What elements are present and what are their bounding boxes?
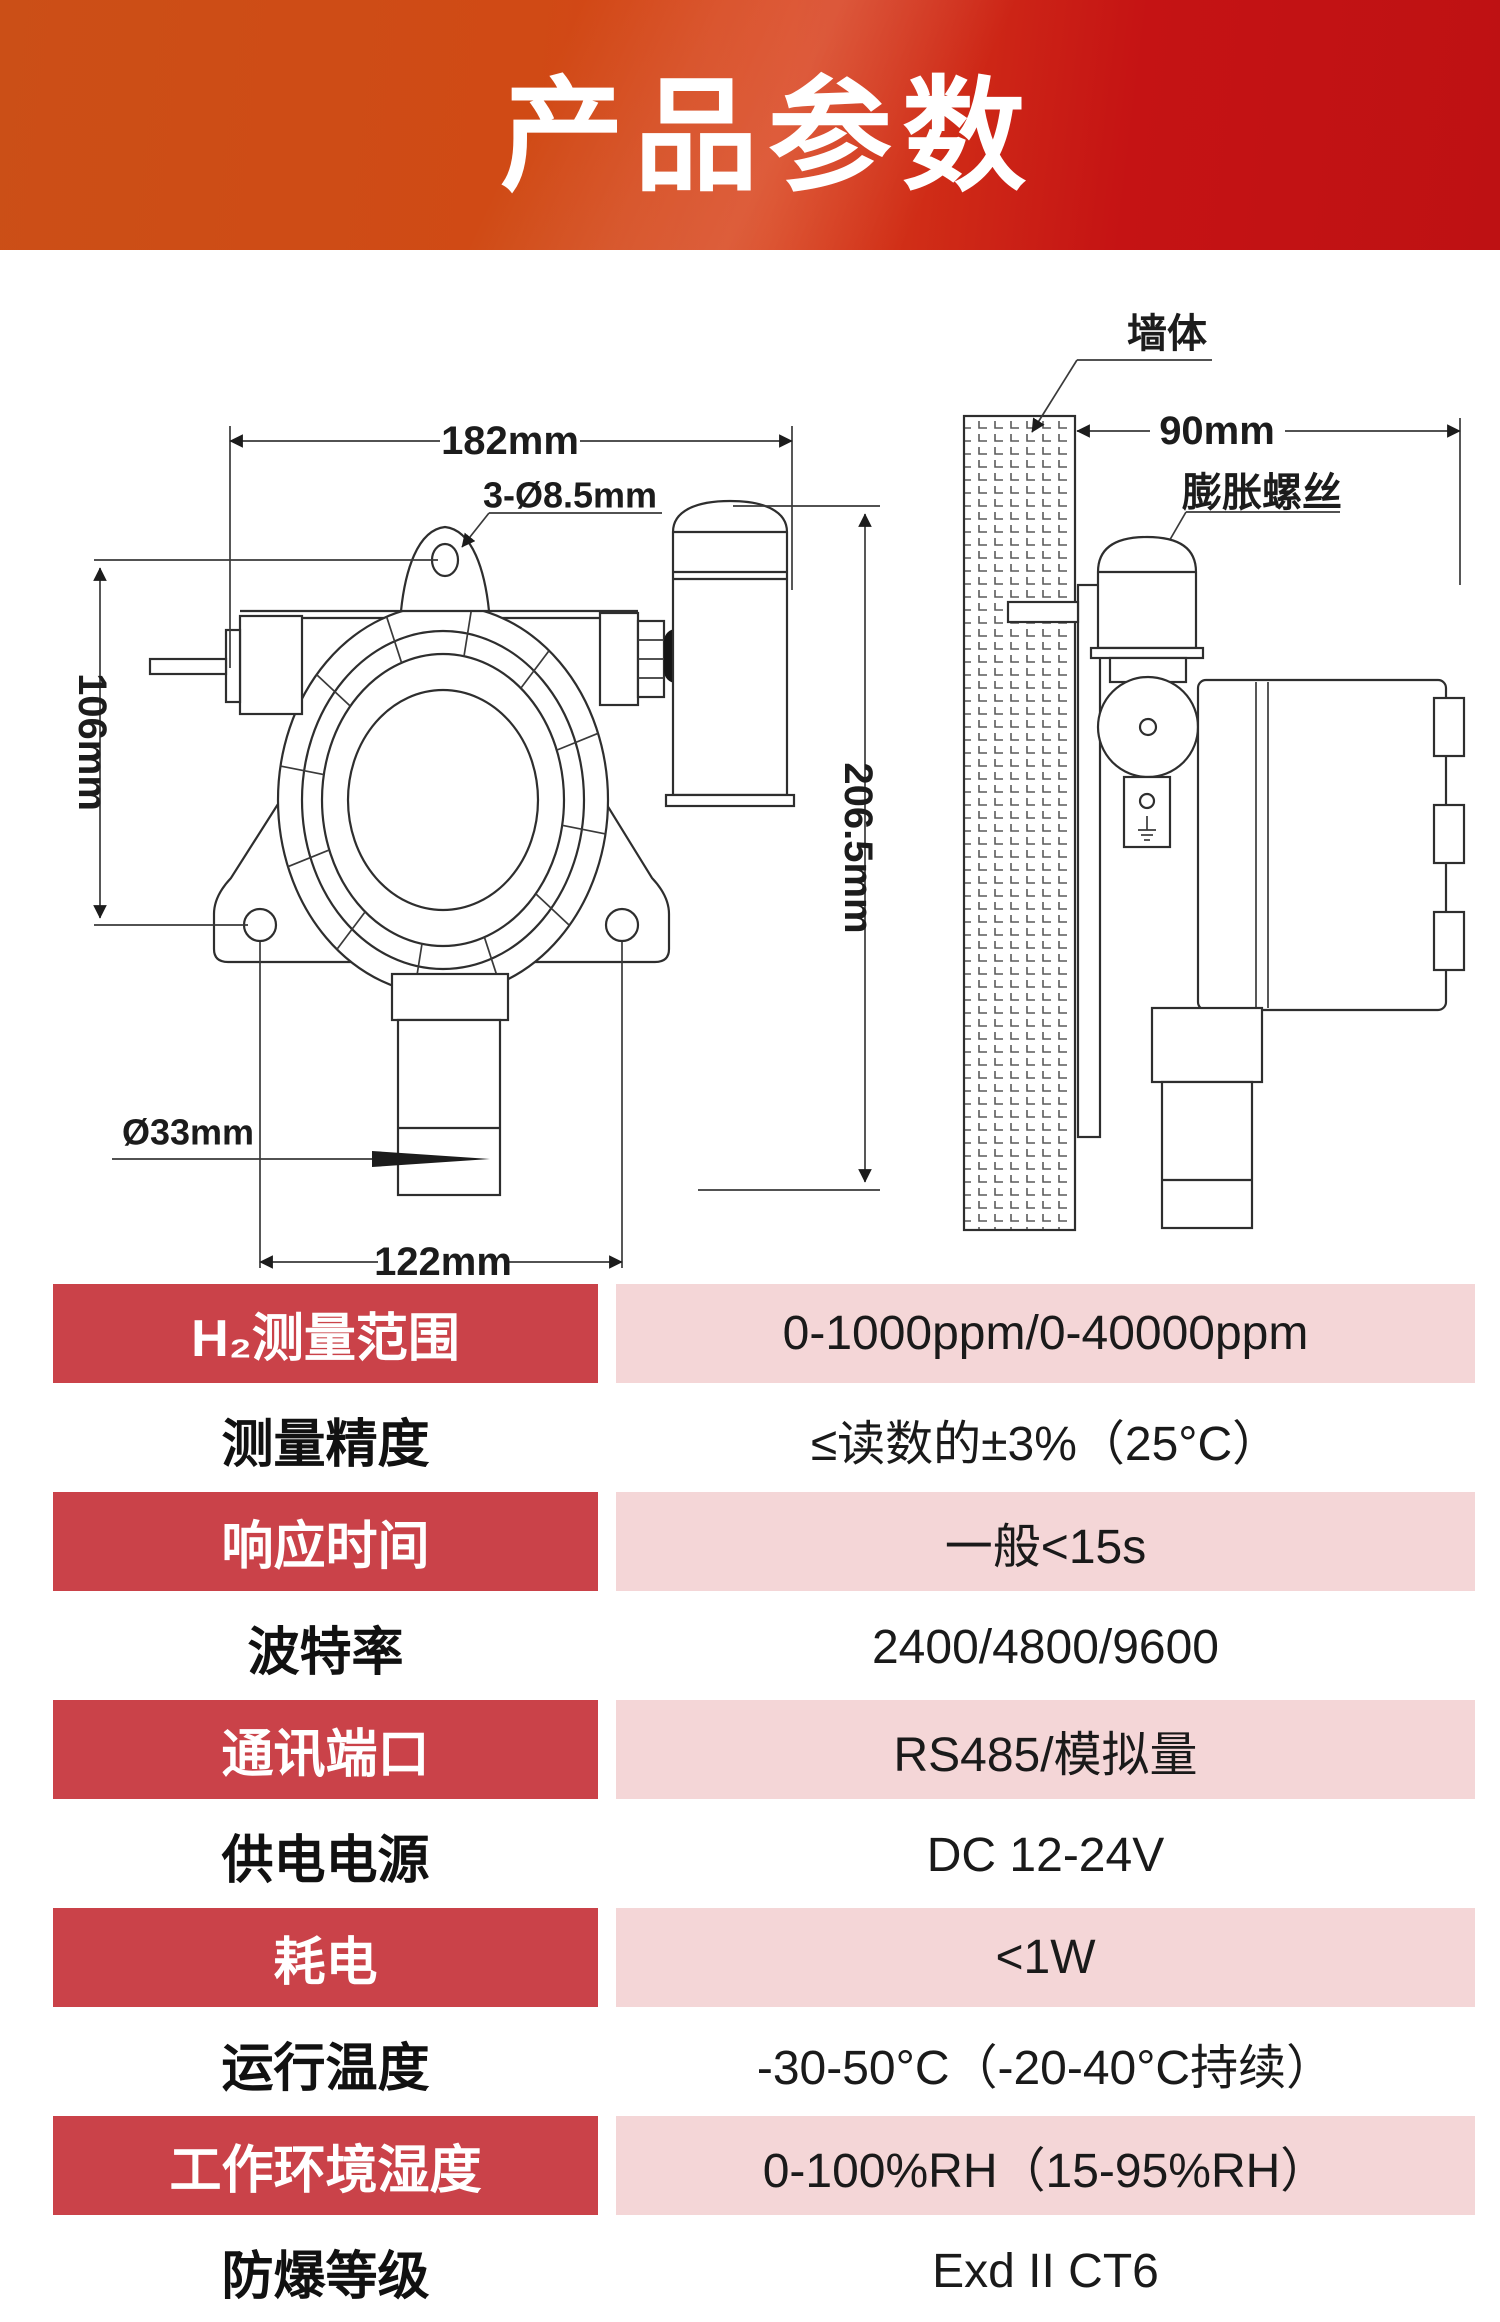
ground-tab	[1124, 777, 1170, 847]
sensor-neck-side	[1152, 1008, 1262, 1082]
page-title: 产品参数	[500, 35, 1036, 215]
spec-row-response-time: 响应时间 一般<15s	[53, 1491, 1475, 1595]
housing-window	[348, 690, 538, 910]
svg-text:墙体: 墙体	[1127, 312, 1207, 356]
header-banner: 产品参数	[0, 0, 1500, 250]
svg-text:90mm: 90mm	[1159, 409, 1275, 453]
spec-row-power-supply: 供电电源 DC 12-24V	[53, 1803, 1475, 1907]
spec-table: H₂测量范围 0-1000ppm/0-40000ppm 测量精度 ≤读数的±3%…	[0, 1280, 1500, 2322]
spec-value: <1W	[616, 1908, 1475, 2007]
spec-value: ≤读数的±3%（25°C）	[616, 1387, 1475, 1491]
spec-label: 响应时间	[53, 1492, 598, 1591]
spec-value: 一般<15s	[616, 1492, 1475, 1591]
housing-side	[1198, 680, 1446, 1010]
bracket-boss	[1098, 677, 1198, 777]
spec-label: 通讯端口	[53, 1700, 598, 1799]
product-parameters-page: 产品参数	[0, 0, 1500, 2322]
spec-row-accuracy: 测量精度 ≤读数的±3%（25°C）	[53, 1387, 1475, 1491]
back-plate	[1078, 585, 1100, 1137]
spec-label: 工作环境湿度	[53, 2116, 598, 2215]
spec-value: DC 12-24V	[616, 1803, 1475, 1907]
spec-row-baud-rate: 波特率 2400/4800/9600	[53, 1595, 1475, 1699]
spec-label: 供电电源	[53, 1803, 598, 1907]
cable-gland	[240, 616, 302, 714]
sensor-cylinder	[398, 1020, 500, 1195]
spec-label: 防爆等级	[53, 2219, 598, 2322]
spec-label: 波特率	[53, 1595, 598, 1699]
spec-label: 耗电	[53, 1908, 598, 2007]
svg-text:3-Ø8.5mm: 3-Ø8.5mm	[483, 475, 657, 516]
spec-value: 2400/4800/9600	[616, 1595, 1475, 1699]
svg-text:122mm: 122mm	[374, 1240, 512, 1280]
spec-value: Exd II CT6	[616, 2219, 1475, 2322]
front-view-drawing: 182mm 3-Ø8.5mm 106mm Ø33mm	[70, 419, 880, 1280]
alarm-beacon	[673, 501, 787, 795]
svg-text:182mm: 182mm	[441, 419, 579, 463]
svg-text:膨胀螺丝: 膨胀螺丝	[1182, 471, 1342, 515]
top-mount-tab	[401, 527, 489, 611]
svg-text:106mm: 106mm	[70, 673, 114, 811]
spec-row-comm-port: 通讯端口 RS485/模拟量	[53, 1699, 1475, 1803]
spec-value: 0-1000ppm/0-40000ppm	[616, 1284, 1475, 1383]
alarm-beacon-side	[1098, 537, 1196, 648]
spec-row-explosion-proof: 防爆等级 Exd II CT6	[53, 2219, 1475, 2322]
cable-rod	[150, 659, 226, 674]
spec-value: RS485/模拟量	[616, 1700, 1475, 1799]
spec-row-operating-temp: 运行温度 -30-50°C（-20-40°C持续）	[53, 2011, 1475, 2115]
spec-value: 0-100%RH（15-95%RH）	[616, 2116, 1475, 2215]
dim-mount-holes: 3-Ø8.5mm	[462, 475, 662, 548]
anchor-screw	[1008, 602, 1078, 622]
side-view-drawing: 墙体 90mm 膨胀螺丝	[964, 312, 1464, 1230]
svg-text:206.5mm: 206.5mm	[836, 762, 880, 933]
spec-row-humidity: 工作环境湿度 0-100%RH（15-95%RH）	[53, 2115, 1475, 2219]
device-dimension-drawing: 182mm 3-Ø8.5mm 106mm Ø33mm	[0, 250, 1500, 1280]
spec-label: 运行温度	[53, 2011, 598, 2115]
svg-text:Ø33mm: Ø33mm	[122, 1112, 254, 1153]
sensor-cylinder-side	[1162, 1082, 1252, 1228]
spec-row-measure-range: H₂测量范围 0-1000ppm/0-40000ppm	[53, 1283, 1475, 1387]
spec-label: H₂测量范围	[53, 1284, 598, 1383]
sensor-neck	[392, 974, 508, 1020]
spec-row-power-consumption: 耗电 <1W	[53, 1907, 1475, 2011]
spec-label: 测量精度	[53, 1387, 598, 1491]
spec-value: -30-50°C（-20-40°C持续）	[616, 2011, 1475, 2115]
wall-hatch	[964, 416, 1075, 1230]
technical-drawing-section: 182mm 3-Ø8.5mm 106mm Ø33mm	[0, 250, 1500, 1280]
